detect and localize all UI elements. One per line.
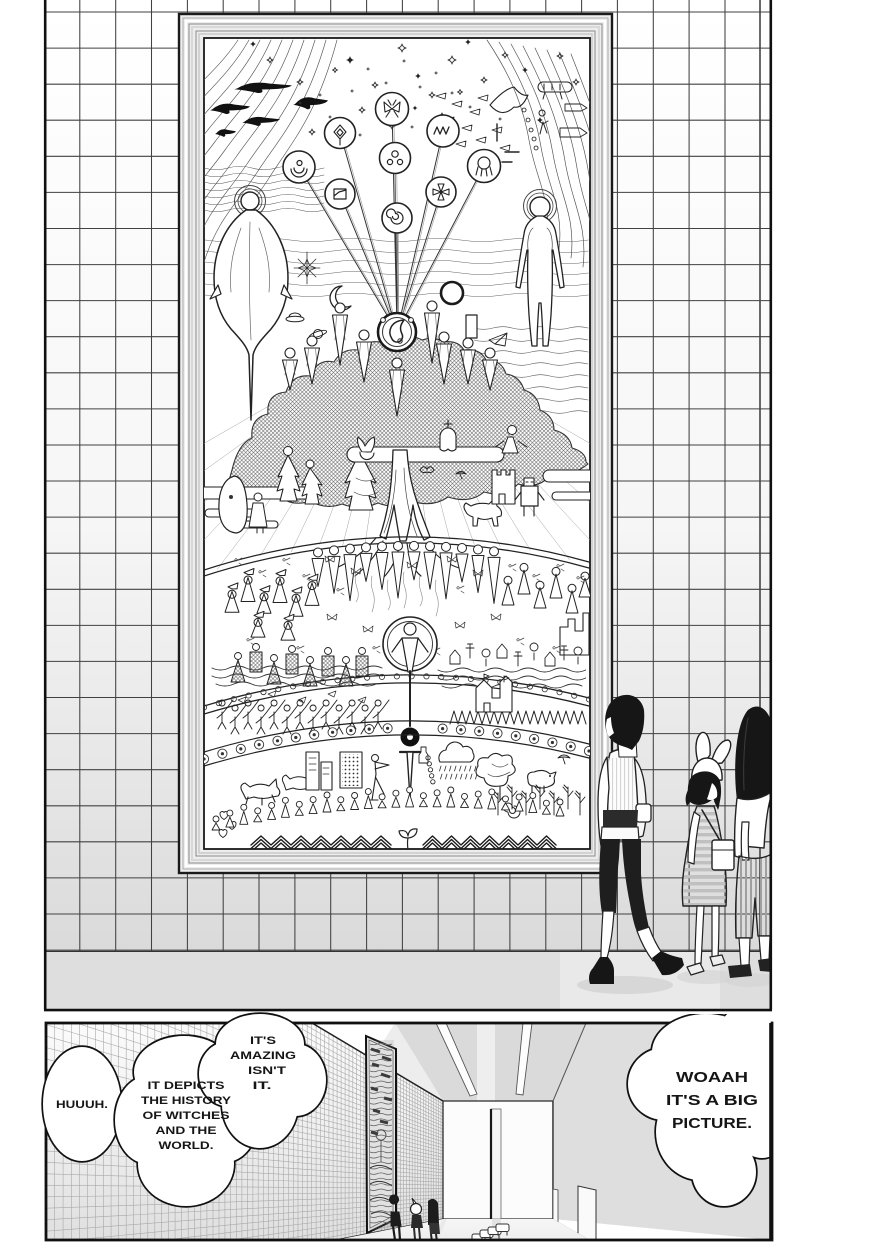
- svg-text:AND THE: AND THE: [156, 1125, 217, 1137]
- svg-text:IT.: IT.: [253, 1080, 272, 1092]
- svg-text:IT'S: IT'S: [250, 1035, 277, 1047]
- svg-text:THE HISTORY: THE HISTORY: [141, 1095, 231, 1107]
- svg-text:PICTURE.: PICTURE.: [672, 1115, 752, 1132]
- svg-text:HUUUH.: HUUUH.: [56, 1099, 108, 1111]
- svg-text:OF WITCHES: OF WITCHES: [143, 1110, 230, 1122]
- svg-text:WOAAH: WOAAH: [676, 1069, 748, 1086]
- svg-text:IT'S A BIG: IT'S A BIG: [666, 1092, 758, 1109]
- svg-text:ISN'T: ISN'T: [248, 1065, 286, 1077]
- svg-text:WORLD.: WORLD.: [159, 1140, 214, 1152]
- svg-text:IT DEPICTS: IT DEPICTS: [148, 1080, 225, 1092]
- svg-text:AMAZING: AMAZING: [230, 1050, 296, 1062]
